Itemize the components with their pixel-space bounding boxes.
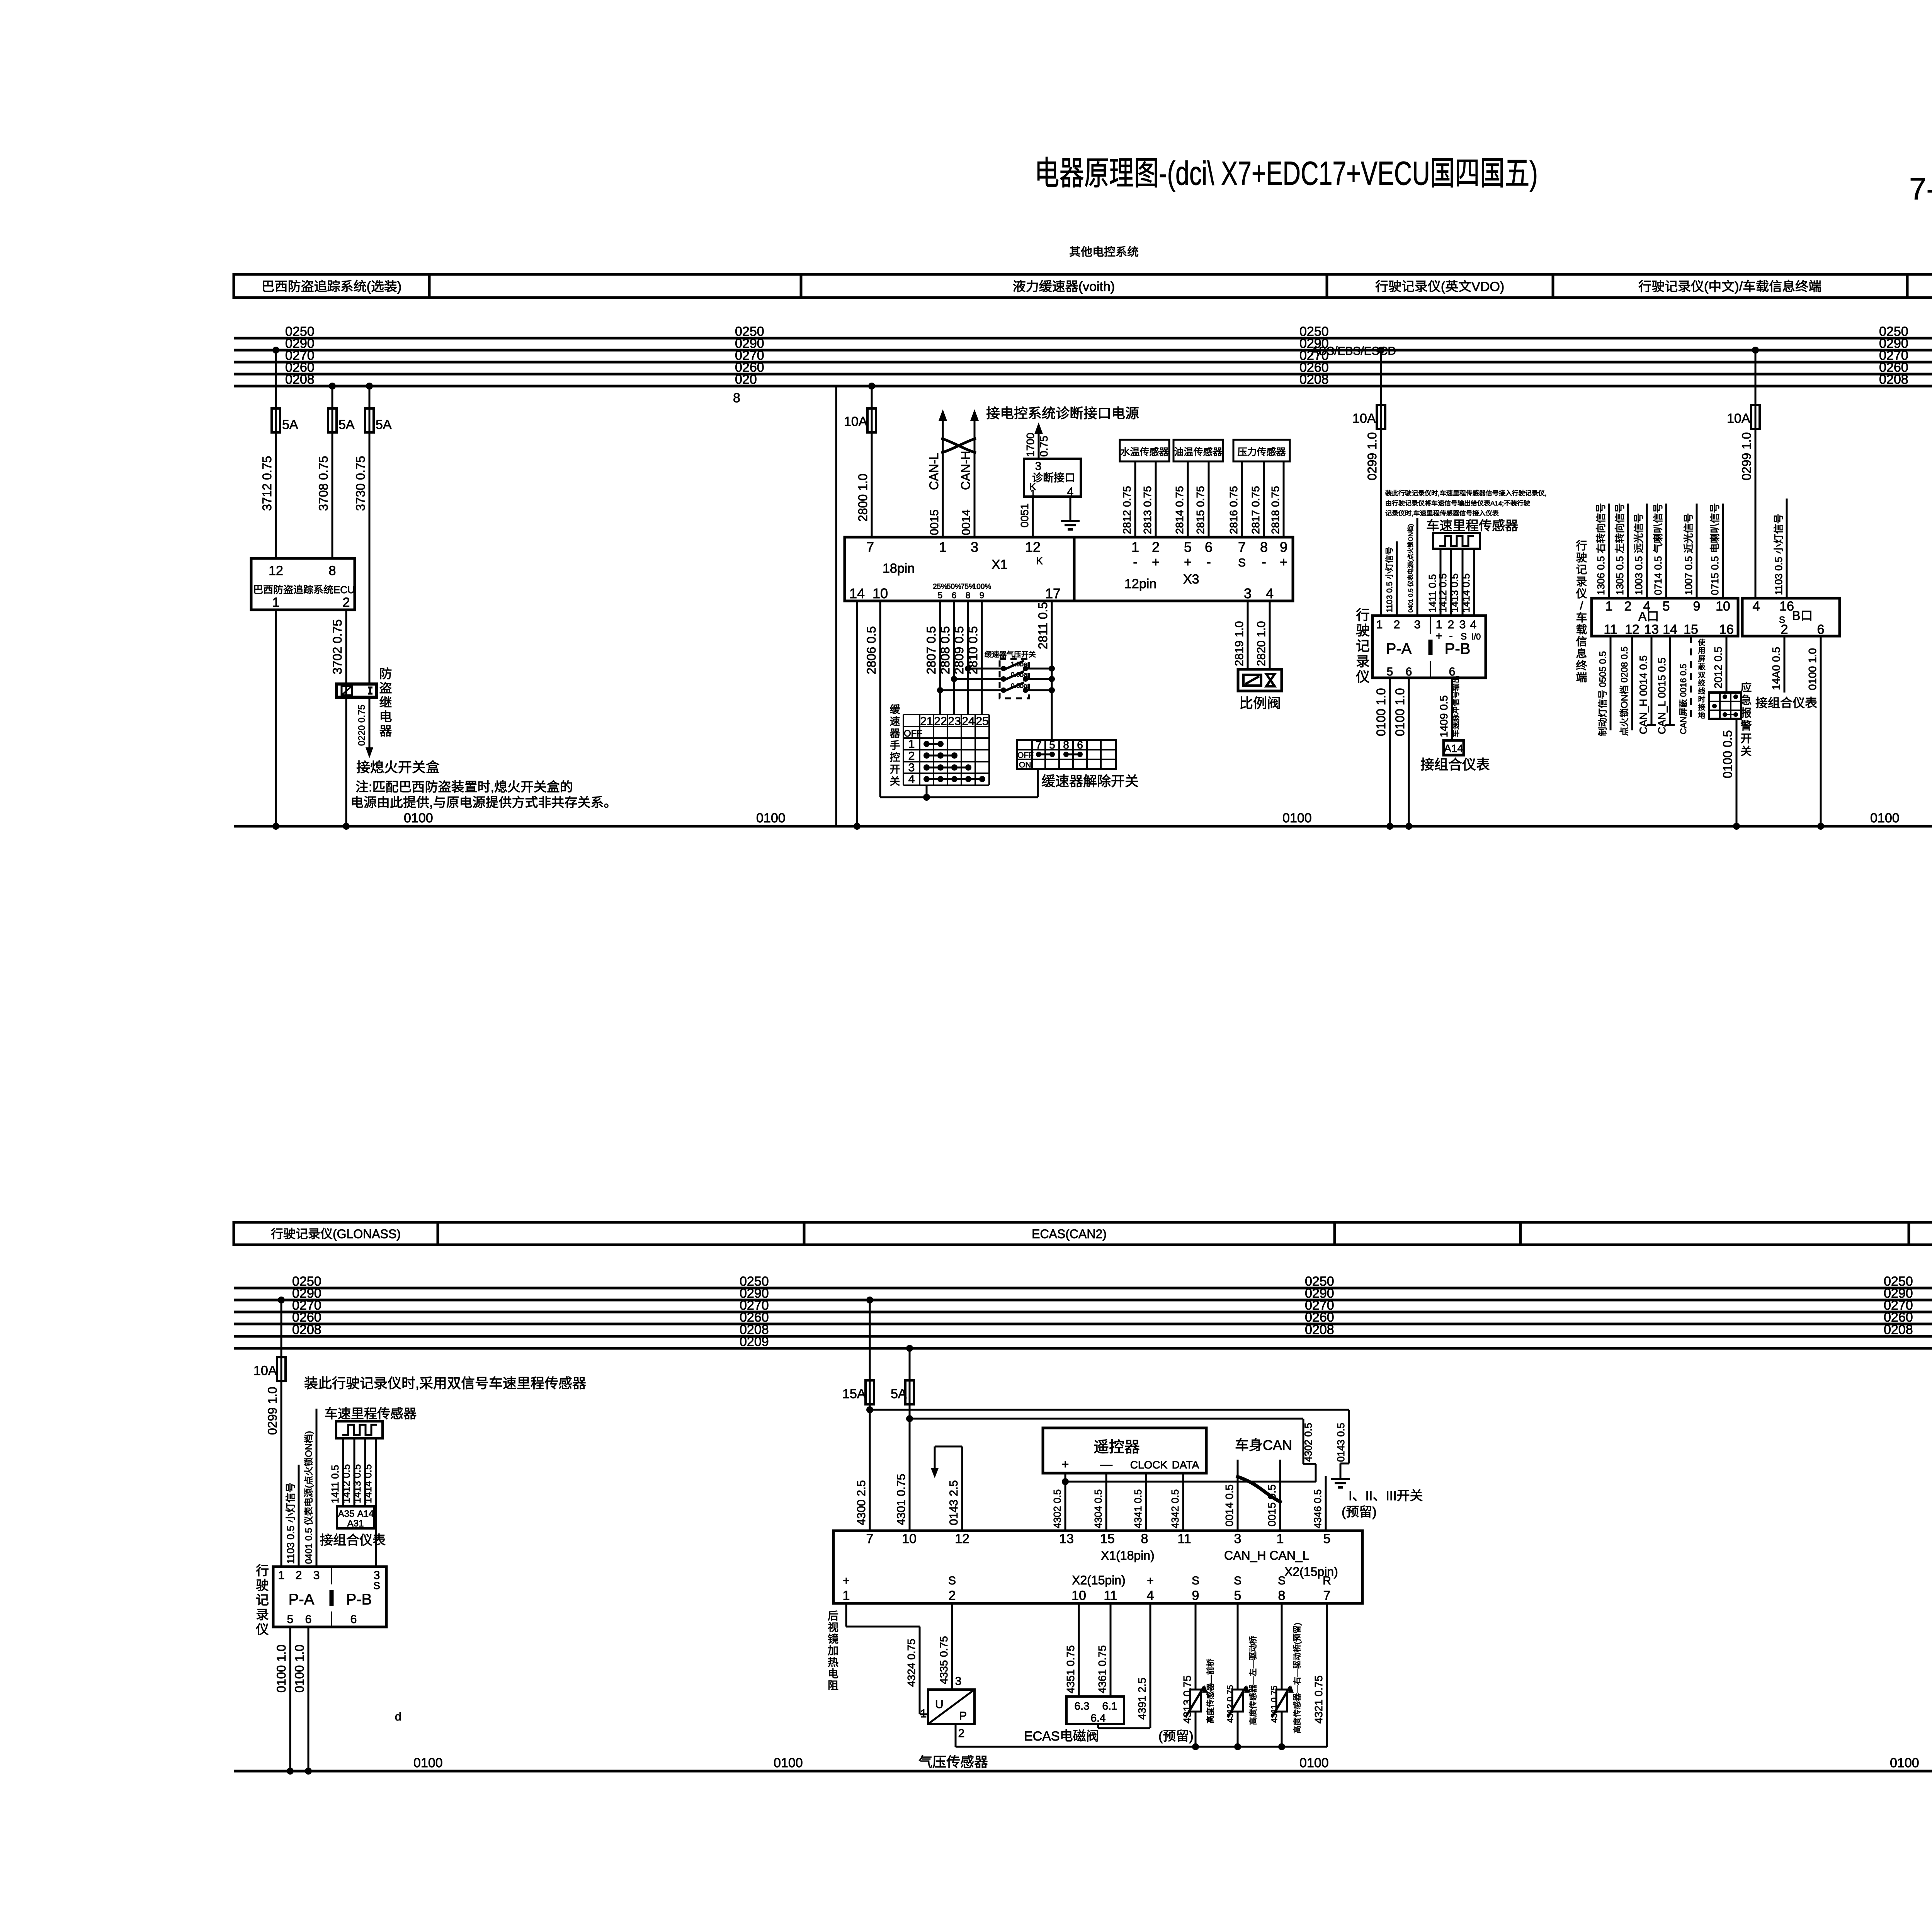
svg-text:用: 用 — [1698, 647, 1705, 655]
svg-text:12pin: 12pin — [1124, 577, 1156, 591]
svg-text:1700: 1700 — [1024, 433, 1036, 457]
svg-text:6: 6 — [1205, 539, 1213, 555]
svg-text:接组合仪表: 接组合仪表 — [1755, 696, 1817, 710]
svg-text:2800 1.0: 2800 1.0 — [856, 473, 870, 522]
svg-text:CAN-L: CAN-L — [927, 453, 941, 490]
svg-text:4300 2.5: 4300 2.5 — [855, 1480, 868, 1525]
svg-text:1.0bar: 1.0bar — [1011, 660, 1030, 668]
svg-text:4342 0.5: 4342 0.5 — [1169, 1489, 1181, 1528]
svg-text:X1: X1 — [992, 557, 1008, 572]
svg-text:0100: 0100 — [413, 1756, 443, 1770]
svg-text:时: 时 — [1698, 696, 1705, 704]
svg-text:仪: 仪 — [1576, 588, 1587, 600]
svg-text:6: 6 — [1077, 739, 1083, 751]
svg-text:ON: ON — [1019, 761, 1031, 769]
svg-text:高度传感器—前桥: 高度传感器—前桥 — [1206, 1659, 1215, 1724]
svg-text:2811 0.5: 2811 0.5 — [1036, 602, 1050, 649]
svg-text:16: 16 — [1719, 622, 1734, 637]
svg-text:2807 0.5: 2807 0.5 — [924, 626, 938, 674]
svg-text:15A: 15A — [842, 1387, 866, 1401]
svg-text:2: 2 — [1152, 539, 1160, 555]
svg-text:3: 3 — [971, 539, 978, 555]
svg-text:7: 7 — [1036, 739, 1042, 751]
svg-text:接组合仪表: 接组合仪表 — [1420, 757, 1490, 773]
svg-text:0100: 0100 — [1870, 811, 1900, 825]
svg-text:U: U — [935, 1698, 944, 1711]
svg-text:0401 0.5 仪表电源(点火锁ON档): 0401 0.5 仪表电源(点火锁ON档) — [304, 1431, 314, 1564]
svg-text:5: 5 — [1663, 599, 1670, 614]
svg-text:S: S — [1238, 556, 1246, 569]
svg-text:8: 8 — [329, 563, 336, 578]
svg-text:开: 开 — [890, 764, 900, 775]
svg-text:13: 13 — [1059, 1531, 1074, 1546]
svg-text:ECAS(CAN2): ECAS(CAN2) — [1032, 1227, 1107, 1241]
svg-text:1: 1 — [278, 1569, 285, 1582]
svg-text:1412 0.5: 1412 0.5 — [340, 1464, 352, 1503]
svg-text:1103 0.5 小灯信号: 1103 0.5 小灯信号 — [1773, 514, 1784, 595]
svg-text:12: 12 — [955, 1531, 969, 1546]
svg-text:录: 录 — [256, 1608, 269, 1622]
svg-text:5: 5 — [938, 590, 942, 600]
svg-text:23: 23 — [948, 715, 961, 728]
svg-text:4: 4 — [1470, 618, 1477, 631]
svg-text:0100 1.0: 0100 1.0 — [274, 1644, 288, 1693]
svg-text:CAN-H: CAN-H — [959, 451, 973, 490]
svg-text:24: 24 — [962, 715, 975, 728]
svg-text:2819 1.0: 2819 1.0 — [1233, 621, 1246, 666]
svg-text:3: 3 — [908, 761, 915, 774]
svg-text:8: 8 — [1278, 1588, 1286, 1603]
svg-text:DATA: DATA — [1172, 1459, 1199, 1471]
svg-text:6: 6 — [1817, 622, 1825, 637]
svg-text:1: 1 — [920, 1707, 927, 1720]
svg-text:10: 10 — [1716, 599, 1730, 614]
svg-text:9: 9 — [980, 590, 984, 600]
svg-text:+: + — [1062, 1457, 1069, 1471]
svg-text:视: 视 — [828, 1622, 838, 1634]
svg-text:0209: 0209 — [740, 1334, 769, 1349]
svg-text:记: 记 — [1576, 564, 1587, 576]
svg-text:4335 0.75: 4335 0.75 — [938, 1636, 950, 1684]
svg-text:缓速器气压开关: 缓速器气压开关 — [985, 651, 1036, 659]
svg-text:手: 手 — [890, 740, 900, 751]
svg-text:4341 0.5: 4341 0.5 — [1132, 1489, 1144, 1528]
svg-text:OFF: OFF — [1017, 751, 1034, 760]
svg-text:I/0: I/0 — [1471, 632, 1481, 642]
svg-text:-: - — [1262, 555, 1266, 570]
svg-text:4391 2.5: 4391 2.5 — [1136, 1678, 1148, 1720]
svg-text:18pin: 18pin — [883, 561, 915, 576]
svg-text:5A: 5A — [891, 1387, 907, 1401]
svg-text:绞: 绞 — [1698, 679, 1705, 687]
svg-text:0100: 0100 — [756, 811, 786, 825]
svg-text:使: 使 — [1698, 639, 1705, 647]
svg-text:4: 4 — [908, 773, 915, 786]
svg-text:继: 继 — [379, 695, 392, 710]
svg-text:1103 0.5 小灯信号: 1103 0.5 小灯信号 — [285, 1482, 296, 1564]
svg-text:器: 器 — [379, 724, 392, 738]
svg-text:S: S — [1234, 1574, 1242, 1587]
svg-text:6: 6 — [1406, 665, 1412, 678]
svg-text:接组合仪表: 接组合仪表 — [320, 1533, 386, 1548]
svg-text:+: + — [1436, 630, 1442, 642]
svg-text:8: 8 — [1063, 739, 1069, 751]
svg-text:X1(18pin): X1(18pin) — [1101, 1548, 1155, 1562]
svg-text:1: 1 — [1131, 539, 1139, 555]
svg-text:2817 0.75: 2817 0.75 — [1250, 486, 1262, 534]
svg-text:5A: 5A — [376, 417, 392, 432]
svg-text:X2(15pin): X2(15pin) — [1072, 1573, 1126, 1587]
svg-text:0100 1.0: 0100 1.0 — [1806, 648, 1818, 690]
svg-text:地: 地 — [1698, 712, 1705, 720]
svg-text:2816 0.75: 2816 0.75 — [1228, 486, 1240, 534]
svg-text:P-A: P-A — [289, 1591, 315, 1608]
svg-text:14: 14 — [849, 585, 865, 601]
svg-text:9: 9 — [1693, 599, 1701, 614]
svg-text:录: 录 — [1576, 576, 1587, 588]
svg-text:14: 14 — [1663, 622, 1677, 637]
svg-text:车身CAN: 车身CAN — [1235, 1437, 1292, 1453]
svg-text:12: 12 — [269, 563, 283, 578]
svg-text:11: 11 — [1604, 622, 1617, 637]
svg-text:1: 1 — [1605, 599, 1613, 614]
svg-text:10A: 10A — [253, 1363, 277, 1378]
svg-text:1414 0.5: 1414 0.5 — [362, 1464, 374, 1503]
svg-text:12: 12 — [1025, 539, 1041, 555]
svg-text:6: 6 — [305, 1613, 312, 1626]
svg-text:8: 8 — [1141, 1531, 1148, 1546]
svg-text:0.6bar: 0.6bar — [1011, 671, 1030, 678]
svg-text:OFF: OFF — [904, 728, 922, 739]
svg-text:装此行驶记录仪时,采用双信号车速里程传感器: 装此行驶记录仪时,采用双信号车速里程传感器 — [304, 1375, 586, 1391]
svg-text:S: S — [1278, 1574, 1286, 1587]
svg-text:2818 0.75: 2818 0.75 — [1269, 486, 1281, 534]
svg-text:镜: 镜 — [828, 1633, 838, 1645]
svg-text:蔽: 蔽 — [1698, 663, 1705, 671]
svg-text:11: 11 — [1104, 1588, 1117, 1603]
svg-text:急: 急 — [1740, 694, 1752, 707]
svg-text:0014 0.5: 0014 0.5 — [1223, 1484, 1235, 1526]
svg-text:双: 双 — [1698, 671, 1705, 679]
svg-text:10: 10 — [1071, 1588, 1086, 1603]
svg-text:ECAS电磁阀: ECAS电磁阀 — [1024, 1729, 1099, 1744]
svg-text:5: 5 — [1323, 1531, 1331, 1546]
svg-text:息: 息 — [1576, 648, 1587, 660]
svg-text:关: 关 — [1740, 745, 1752, 758]
svg-text:电源由此提供,与原电源提供方式非共存关系。: 电源由此提供,与原电源提供方式非共存关系。 — [350, 795, 617, 810]
svg-text:15: 15 — [1684, 622, 1698, 637]
svg-text:1306 0.5 右转向信号: 1306 0.5 右转向信号 — [1595, 503, 1607, 595]
svg-text:R: R — [1323, 1574, 1331, 1587]
svg-text:7-4: 7-4 — [1909, 172, 1932, 206]
svg-text:0.3bar: 0.3bar — [1011, 682, 1030, 689]
svg-text:高度传感器—左—驱动桥: 高度传感器—左—驱动桥 — [1249, 1636, 1258, 1725]
svg-text:(预留): (预留) — [1158, 1729, 1194, 1744]
svg-text:液力缓速器(voith): 液力缓速器(voith) — [1013, 279, 1115, 294]
svg-text:3702 0.75: 3702 0.75 — [330, 619, 344, 674]
svg-text:1103 0.5 小灯信号: 1103 0.5 小灯信号 — [1385, 547, 1394, 613]
svg-text:3712 0.75: 3712 0.75 — [260, 456, 274, 511]
svg-text:0051: 0051 — [1019, 504, 1031, 527]
svg-text:2: 2 — [1448, 618, 1454, 631]
svg-text:0100 0.5: 0100 0.5 — [1721, 730, 1735, 778]
svg-text:P: P — [959, 1710, 967, 1722]
svg-text:0100: 0100 — [774, 1756, 803, 1770]
svg-text:缓速器解除开关: 缓速器解除开关 — [1041, 773, 1139, 789]
svg-text:3: 3 — [955, 1675, 962, 1688]
svg-text:接电控系统诊断接口电源: 接电控系统诊断接口电源 — [986, 405, 1139, 421]
svg-text:8: 8 — [966, 590, 970, 600]
svg-text:记: 记 — [256, 1593, 269, 1608]
svg-text:8: 8 — [733, 391, 740, 405]
svg-text:器: 器 — [890, 728, 900, 739]
svg-text:屏: 屏 — [1698, 655, 1705, 663]
svg-text:水温传感器: 水温传感器 — [1120, 447, 1168, 458]
svg-text:0715 0.5 电喇叭信号: 0715 0.5 电喇叭信号 — [1709, 503, 1721, 595]
svg-text:B口: B口 — [1792, 609, 1813, 623]
svg-text:5A: 5A — [282, 417, 298, 432]
svg-text:1: 1 — [1376, 618, 1383, 631]
svg-text:A口: A口 — [1638, 609, 1659, 623]
svg-text:2: 2 — [1624, 599, 1632, 614]
svg-text:3708 0.75: 3708 0.75 — [316, 456, 330, 511]
svg-text:行驶记录仪(英文VDO): 行驶记录仪(英文VDO) — [1375, 279, 1504, 294]
svg-text:6.1: 6.1 — [1102, 1700, 1117, 1712]
svg-text:5: 5 — [287, 1613, 294, 1626]
svg-text:速: 速 — [890, 716, 900, 727]
svg-text:2: 2 — [949, 1588, 956, 1603]
svg-text:2809 0.5: 2809 0.5 — [952, 626, 966, 674]
svg-text:7: 7 — [866, 539, 874, 555]
svg-text:+: + — [1147, 1574, 1154, 1587]
svg-text:压力传感器: 压力传感器 — [1237, 447, 1286, 458]
svg-text:5: 5 — [1184, 539, 1192, 555]
svg-text:0100: 0100 — [1282, 811, 1312, 825]
svg-text:4302 0.5: 4302 0.5 — [1302, 1423, 1314, 1462]
svg-text:4361 0.75: 4361 0.75 — [1096, 1645, 1108, 1693]
svg-text:11: 11 — [1177, 1531, 1191, 1546]
svg-text:关: 关 — [890, 776, 900, 787]
svg-text:3730 0.75: 3730 0.75 — [354, 456, 367, 511]
svg-text:0208: 0208 — [285, 372, 315, 387]
svg-text:4: 4 — [1753, 599, 1760, 614]
svg-text:4311 0.75: 4311 0.75 — [1269, 1686, 1279, 1723]
svg-text:0100: 0100 — [1299, 1756, 1329, 1770]
svg-text:—: — — [1100, 1457, 1112, 1471]
svg-text:A14: A14 — [357, 1509, 374, 1519]
svg-text:A31: A31 — [347, 1518, 364, 1529]
svg-text:3: 3 — [1414, 618, 1421, 631]
svg-text:1003 0.5 远光信号: 1003 0.5 远光信号 — [1633, 513, 1645, 595]
svg-text:I、II、III开关: I、II、III开关 — [1349, 1489, 1423, 1503]
svg-text:1413 0.5: 1413 0.5 — [351, 1464, 363, 1503]
svg-text:1411 0.5: 1411 0.5 — [329, 1465, 341, 1503]
svg-text:3: 3 — [1459, 618, 1466, 631]
svg-text:应: 应 — [1740, 682, 1752, 694]
svg-text:CAN_L 0015 0.5: CAN_L 0015 0.5 — [1656, 657, 1668, 734]
svg-text:车: 车 — [1576, 612, 1587, 624]
svg-text:其他电控系统: 其他电控系统 — [1069, 246, 1139, 259]
svg-text:4: 4 — [1067, 485, 1074, 498]
svg-text:盗: 盗 — [379, 681, 392, 695]
svg-text:2813 0.75: 2813 0.75 — [1141, 486, 1153, 534]
svg-text:CAN屏蔽 0016 0.5: CAN屏蔽 0016 0.5 — [1679, 664, 1688, 734]
svg-text:4346 0.5: 4346 0.5 — [1312, 1489, 1323, 1528]
svg-text:缓: 缓 — [890, 704, 900, 715]
svg-text:仪: 仪 — [1356, 669, 1370, 685]
svg-text:-: - — [1133, 555, 1137, 570]
svg-text:1414 0.5: 1414 0.5 — [1460, 573, 1472, 613]
svg-text:25: 25 — [976, 715, 988, 728]
svg-text:4: 4 — [1147, 1588, 1154, 1603]
svg-text:比例阀: 比例阀 — [1239, 695, 1281, 711]
svg-text:仪: 仪 — [256, 1622, 269, 1637]
svg-text:4313 0.75: 4313 0.75 — [1181, 1675, 1193, 1724]
svg-text:7: 7 — [866, 1531, 874, 1546]
svg-text:行驶记录仪(GLONASS): 行驶记录仪(GLONASS) — [271, 1227, 401, 1241]
svg-text:电器原理图-(dci\ X7+EDC17+VECU国四国五): 电器原理图-(dci\ X7+EDC17+VECU国四国五) — [1034, 155, 1538, 192]
svg-text:+: + — [843, 1574, 850, 1587]
svg-text:14A0 0.5: 14A0 0.5 — [1770, 647, 1782, 690]
svg-text:0143 0.5: 0143 0.5 — [1335, 1423, 1347, 1462]
svg-text:车速里程传感器: 车速里程传感器 — [1426, 519, 1518, 533]
svg-text:17: 17 — [1045, 585, 1061, 601]
svg-text:1413 0.5: 1413 0.5 — [1449, 573, 1460, 613]
svg-text:0100 1.0: 0100 1.0 — [1374, 688, 1388, 736]
svg-text:0208: 0208 — [1305, 1322, 1334, 1337]
svg-text:6: 6 — [952, 590, 956, 600]
svg-text:0299 1.0: 0299 1.0 — [265, 1387, 279, 1435]
svg-text:录: 录 — [1356, 653, 1370, 669]
svg-text:2820 1.0: 2820 1.0 — [1255, 621, 1268, 666]
svg-text:由行驶记录仪将车速信号输出给仪表A14;不装行驶: 由行驶记录仪将车速信号输出给仪表A14;不装行驶 — [1385, 500, 1530, 507]
svg-text:2: 2 — [958, 1727, 965, 1740]
svg-text:1: 1 — [1277, 1531, 1284, 1546]
svg-text:22: 22 — [934, 715, 947, 728]
svg-text:热: 热 — [828, 1656, 838, 1668]
svg-text:注:匹配巴西防盗装置时,熄火开关盒的: 注:匹配巴西防盗装置时,熄火开关盒的 — [355, 780, 573, 795]
svg-text:后: 后 — [828, 1610, 838, 1622]
svg-text:电: 电 — [379, 710, 392, 724]
svg-text:车速脉冲信号输出: 车速脉冲信号输出 — [1452, 676, 1460, 737]
svg-text:巴西防盗追踪系统ECU: 巴西防盗追踪系统ECU — [253, 584, 355, 596]
svg-text:1411 0.5: 1411 0.5 — [1427, 574, 1438, 613]
svg-text:行: 行 — [1576, 540, 1587, 552]
svg-text:1: 1 — [908, 738, 915, 750]
svg-text:9: 9 — [1192, 1588, 1199, 1603]
svg-text:X3: X3 — [1183, 572, 1199, 587]
svg-text:线: 线 — [1698, 687, 1705, 696]
svg-text:行: 行 — [1356, 607, 1370, 623]
svg-text:2812 0.75: 2812 0.75 — [1121, 486, 1133, 534]
svg-text:12: 12 — [1625, 622, 1639, 637]
svg-text:P-A: P-A — [1386, 640, 1412, 657]
svg-text:1305 0.5 左转向信号: 1305 0.5 左转向信号 — [1614, 503, 1626, 595]
svg-text:0.75: 0.75 — [1038, 436, 1050, 457]
svg-text:7: 7 — [1323, 1588, 1331, 1603]
svg-text:10: 10 — [872, 585, 888, 601]
svg-text:3: 3 — [1244, 585, 1252, 601]
svg-text:诊断接口: 诊断接口 — [1032, 472, 1075, 484]
svg-text:遥控器: 遥控器 — [1094, 1439, 1140, 1456]
svg-text:点火锁ON档 0208 0.5: 点火锁ON档 0208 0.5 — [1619, 647, 1630, 736]
svg-text:S: S — [373, 1580, 380, 1591]
svg-text:0100: 0100 — [404, 811, 433, 825]
svg-text:0015 0.5: 0015 0.5 — [1266, 1484, 1278, 1526]
svg-text:1007 0.5 近光信号: 1007 0.5 近光信号 — [1683, 513, 1694, 595]
svg-text:2806 0.5: 2806 0.5 — [864, 626, 878, 674]
svg-text:2: 2 — [343, 595, 350, 610]
svg-text:2815 0.75: 2815 0.75 — [1194, 486, 1206, 534]
svg-text:4304 0.5: 4304 0.5 — [1092, 1489, 1104, 1528]
svg-text:P-B: P-B — [1445, 640, 1471, 657]
svg-text:记: 记 — [1356, 638, 1370, 654]
svg-text:0014: 0014 — [960, 509, 973, 535]
svg-text:0299 1.0: 0299 1.0 — [1365, 432, 1379, 480]
svg-text:终: 终 — [1576, 660, 1587, 672]
svg-text:CLOCK: CLOCK — [1130, 1459, 1168, 1471]
svg-text:电: 电 — [828, 1668, 838, 1680]
svg-text:1: 1 — [843, 1588, 850, 1603]
svg-text:d: d — [395, 1710, 401, 1723]
svg-text:2: 2 — [296, 1569, 302, 1582]
svg-text:信: 信 — [1576, 636, 1587, 648]
svg-text:驶: 驶 — [256, 1578, 269, 1593]
svg-text:行: 行 — [256, 1564, 269, 1578]
svg-text:2: 2 — [1394, 618, 1400, 631]
svg-text:0208: 0208 — [292, 1322, 321, 1337]
svg-text:3: 3 — [1035, 460, 1042, 473]
svg-text:S: S — [1192, 1574, 1199, 1587]
svg-text:7: 7 — [1238, 539, 1246, 555]
svg-text:记录仪时,车速里程传感器信号接入仪表: 记录仪时,车速里程传感器信号接入仪表 — [1385, 510, 1499, 517]
svg-text:5: 5 — [1234, 1588, 1242, 1603]
svg-text:载: 载 — [1576, 624, 1587, 636]
svg-text:4312 0.75: 4312 0.75 — [1225, 1685, 1235, 1723]
svg-text:50%: 50% — [947, 583, 961, 591]
svg-text:2012 0.5: 2012 0.5 — [1712, 647, 1724, 689]
svg-text:6: 6 — [350, 1613, 357, 1626]
svg-text:0100 1.0: 0100 1.0 — [1393, 688, 1407, 736]
svg-text:2: 2 — [1781, 622, 1788, 637]
svg-text:9: 9 — [1280, 539, 1287, 555]
svg-text:4321 0.75: 4321 0.75 — [1313, 1675, 1325, 1724]
svg-text:100%: 100% — [973, 583, 992, 591]
svg-text:6.4: 6.4 — [1091, 1712, 1106, 1724]
svg-text:4302 0.5: 4302 0.5 — [1051, 1489, 1063, 1528]
svg-text:油温传感器: 油温传感器 — [1174, 447, 1222, 458]
svg-text:0208: 0208 — [1879, 372, 1908, 387]
svg-text:接: 接 — [1698, 704, 1705, 712]
svg-text:控: 控 — [890, 752, 900, 763]
svg-text:2: 2 — [908, 750, 915, 762]
svg-text:驶: 驶 — [1356, 623, 1370, 638]
svg-text:10: 10 — [902, 1531, 917, 1546]
svg-text:1: 1 — [1436, 618, 1442, 631]
svg-text:1: 1 — [939, 539, 947, 555]
svg-text:气压传感器: 气压传感器 — [918, 1754, 988, 1770]
svg-text:/: / — [1580, 600, 1583, 612]
svg-text:驶: 驶 — [1576, 552, 1587, 564]
svg-text:报: 报 — [1740, 707, 1752, 720]
svg-text:2814 0.75: 2814 0.75 — [1173, 486, 1185, 534]
svg-text:3: 3 — [313, 1569, 320, 1582]
svg-text:开: 开 — [1740, 733, 1752, 745]
svg-text:0401 0.5 仪表电源(点火锁ON档): 0401 0.5 仪表电源(点火锁ON档) — [1407, 524, 1414, 613]
svg-text:(预留): (预留) — [1342, 1505, 1377, 1520]
svg-text:21: 21 — [920, 715, 933, 728]
svg-text:警: 警 — [1740, 720, 1752, 732]
